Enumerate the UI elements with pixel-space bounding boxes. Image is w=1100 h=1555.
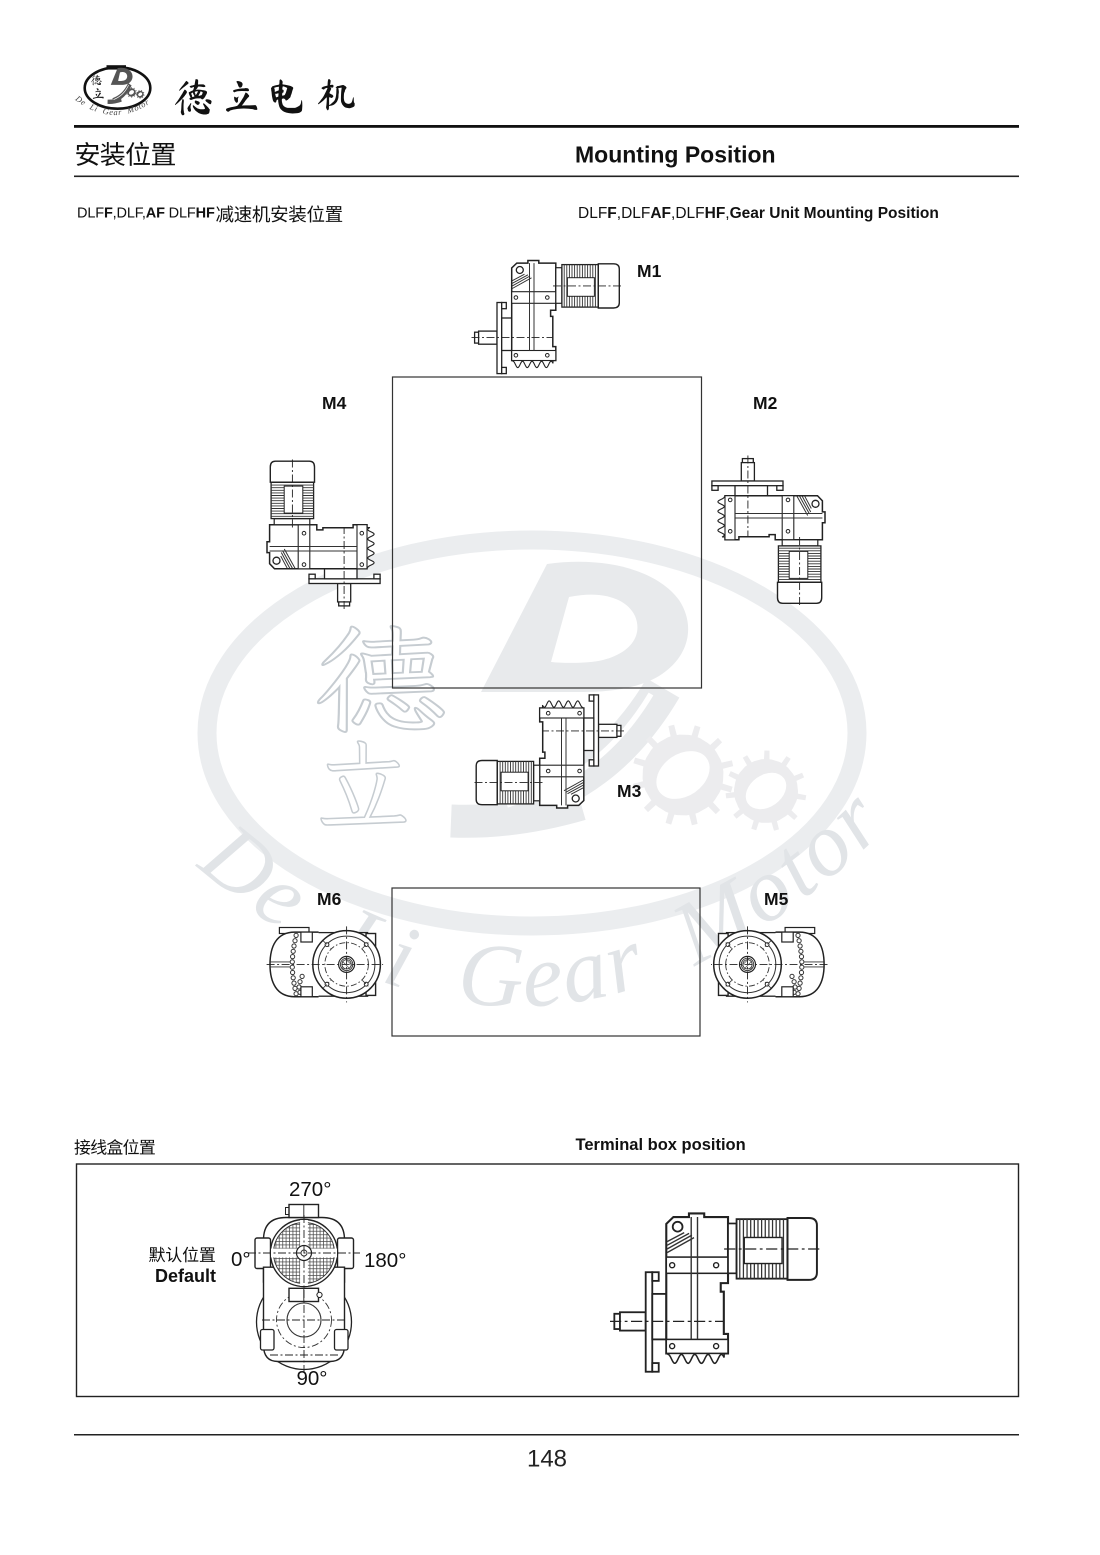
svg-text:Default: Default [155,1266,216,1286]
svg-text:0°: 0° [231,1248,251,1271]
svg-text:M3: M3 [617,781,642,801]
svg-text:M5: M5 [764,889,789,909]
svg-text:DLFF,DLF,AF DLFHF: DLFF,DLF,AF DLFHF [77,206,215,222]
svg-text:M2: M2 [753,393,778,413]
svg-text:M4: M4 [322,393,347,413]
svg-text:148: 148 [527,1446,567,1473]
svg-text:M6: M6 [317,889,342,909]
svg-text:180°: 180° [364,1249,406,1272]
svg-text:270°: 270° [289,1178,331,1201]
svg-text:Mounting Position: Mounting Position [575,142,776,168]
svg-text:M1: M1 [637,261,662,281]
svg-text:90°: 90° [297,1367,328,1390]
svg-text:DLFF,DLFAF,DLFHF,Gear Unit Mou: DLFF,DLFAF,DLFHF,Gear Unit Mounting Posi… [578,205,939,222]
svg-text:Terminal box position: Terminal box position [576,1136,746,1154]
